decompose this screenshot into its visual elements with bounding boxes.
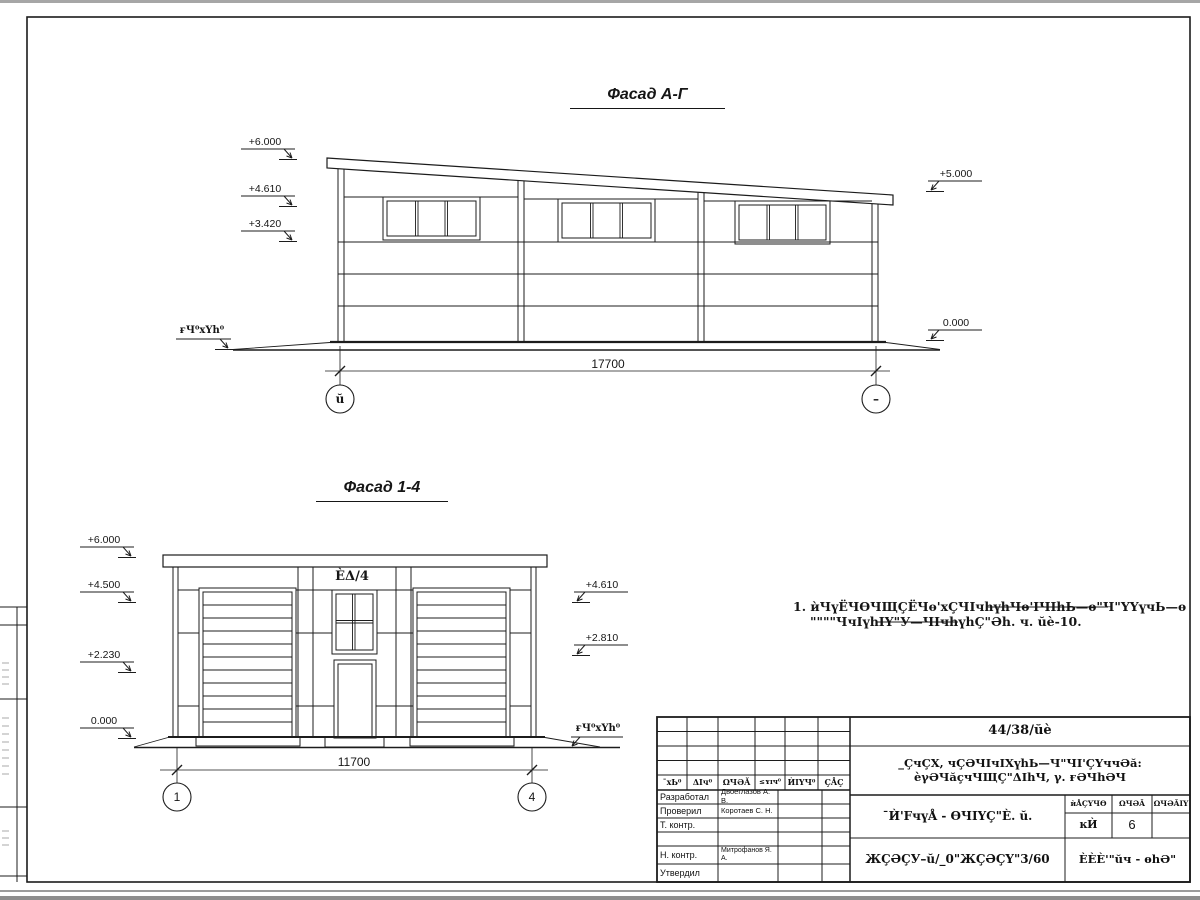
elevation-mark: +6.000 <box>76 534 132 546</box>
sheets-total <box>1152 813 1190 838</box>
role-label: Н. контр. <box>657 846 718 864</box>
elevation-mark: +5.000 <box>928 168 984 180</box>
rev-header-data: ÇÅÇ <box>818 775 850 790</box>
stage-value: ĸЍ <box>1065 813 1112 838</box>
ground-level-label: ғЧ⁰хҮh⁰ <box>172 325 232 336</box>
sheet-number: 6 <box>1112 813 1152 838</box>
rev-header-koluch: ΔІч⁰ <box>687 775 718 790</box>
sheet-header: ΩЧӘĂ <box>1112 795 1152 813</box>
person-name: Коротаев С. Н. <box>718 804 778 818</box>
sheet-title: ¯Ѝ'FчүÅ - ѲЧІҮÇ"È. ŭ. <box>850 795 1065 838</box>
axis-bubble-label: ŭ <box>326 391 354 407</box>
elevation-mark: 0.000 <box>76 715 132 727</box>
person-name <box>718 818 778 832</box>
role-label: Т. контр. <box>657 818 718 832</box>
company-name: ÈÈÈ'"ŭч - ѳhӘ" <box>1065 838 1190 882</box>
note-line: """"ЧчІүhІҮ"У—ЧІчhүhÇ"Әh. ч. ŭè-10. <box>810 614 1082 629</box>
axis-bubble-label: 4 <box>518 789 546 805</box>
rev-header-izm: ¯хЬ⁰ <box>657 775 687 790</box>
dimension-label: 11700 <box>314 755 394 769</box>
door-tag-label: ÈΔ/4 <box>322 569 382 584</box>
axis-bubble-label: 1 <box>163 789 191 805</box>
elevation-mark: +4.610 <box>574 579 630 591</box>
facade-14-drawing <box>80 547 628 811</box>
elevation-mark: 0.000 <box>928 317 984 329</box>
margin-stamp <box>0 607 27 882</box>
elevation-mark: +4.500 <box>76 579 132 591</box>
elevation-mark: +2.230 <box>76 649 132 661</box>
person-name: Митрофанов Я. А. <box>718 846 778 864</box>
sheets-header: ΩЧӘĂІҮ <box>1152 795 1190 813</box>
project-name-line1: _ÇчÇХ, чÇӘЧІчІХүhЬ—Ч"ЧІ'ÇҮччӘă: <box>898 757 1141 770</box>
person-name <box>718 864 778 882</box>
role-label: Утвердил <box>657 864 718 882</box>
dimension-label: 17700 <box>568 357 648 371</box>
elevation-mark: +4.610 <box>237 183 293 195</box>
role-label: Проверил <box>657 804 718 818</box>
doc-number: 44/38/ŭè <box>850 717 1190 746</box>
facade-14-title: Фасад 1-4 <box>316 479 448 502</box>
project-name-line2: èγӘЧăçчЧЩÇ"ΔІhЧ, γ. ғӘЧhӘЧ <box>914 771 1126 784</box>
facade-ag-title: Фасад А-Г <box>570 86 725 109</box>
elevation-mark: +6.000 <box>237 136 293 148</box>
person-name: Двоеглазов А. В. <box>718 790 778 804</box>
axis-bubble-label: – <box>862 391 890 407</box>
rev-header-podp: ЍІҮЧ⁰ <box>785 775 818 790</box>
stage-header: ѝÅÇҮЧѲ <box>1065 795 1112 813</box>
elevation-mark: +3.420 <box>237 218 293 230</box>
project-name: _ÇчÇХ, чÇӘЧІчІХүhЬ—Ч"ЧІ'ÇҮччӘă: èγӘЧăçчЧ… <box>850 746 1190 795</box>
role-label: Разработал <box>657 790 718 804</box>
facade-ag-drawing <box>176 149 982 413</box>
blueprint-sheet: Фасад А-Г +6.000 +4.610 +3.420 +5.000 0.… <box>0 0 1200 900</box>
note-line: 1. ѝЧүЁЧѲЧЩÇЁЧѳ'хÇЧІчhүhЧѳ'ІЧІhЬ—ѳ"Ч"ҮҮү… <box>793 599 1186 614</box>
bottom-code: ЖÇӘÇУ–ŭ/_0"ЖÇӘÇҮ"3/60 <box>850 838 1065 882</box>
ground-level-label: ғЧ⁰хҮh⁰ <box>567 723 629 734</box>
elevation-mark: +2.810 <box>574 632 630 644</box>
